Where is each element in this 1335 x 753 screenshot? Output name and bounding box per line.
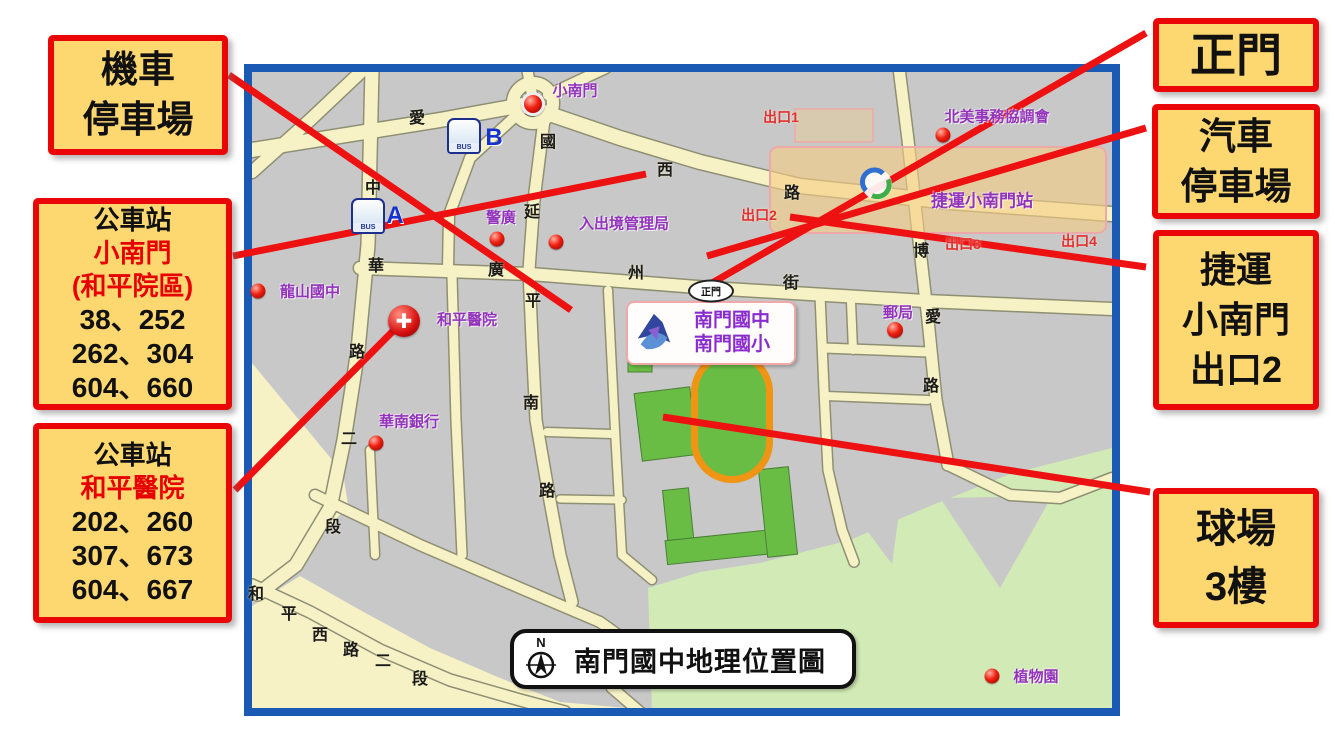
bus-routes: 307、673	[72, 539, 193, 573]
callout-main-gate: 正門	[1153, 18, 1319, 92]
callout-motorcycle-parking: 機車 停車場	[48, 35, 228, 155]
bus-routes: 604、660	[72, 371, 193, 405]
bus-routes: 604、667	[72, 573, 193, 607]
bus-routes: 202、260	[72, 505, 193, 539]
bus-stop-name-note: (和平院區)	[72, 270, 193, 303]
field-infield	[698, 358, 766, 476]
bus-stop-name: 小南門	[93, 237, 171, 270]
callout-line: 3樓	[1205, 558, 1267, 616]
road	[560, 499, 622, 500]
map-clip-group	[252, 68, 1112, 712]
callout-line: 停車場	[1181, 162, 1292, 212]
road	[851, 302, 853, 350]
road	[824, 348, 928, 352]
callout-car-parking: 汽車 停車場	[1152, 104, 1320, 219]
callout-bus-stop-xiaonanmen: 公車站 小南門 (和平院區) 38、252 262、304 604、660	[33, 198, 232, 410]
school-building-green	[628, 356, 652, 372]
callout-mrt-exit2: 捷運 小南門 出口2	[1153, 230, 1319, 410]
bus-routes: 262、304	[72, 337, 193, 371]
mrt-exit1-outline	[795, 109, 873, 142]
callout-line: 出口2	[1190, 345, 1282, 395]
callout-line: 小南門	[1182, 295, 1290, 345]
bus-stop-title: 公車站	[93, 204, 171, 237]
callout-bus-stop-heping-hospital: 公車站 和平醫院 202、260 307、673 604、667	[33, 423, 232, 623]
callout-line: 汽車	[1199, 112, 1273, 162]
bus-stop-name: 和平醫院	[80, 472, 184, 505]
bus-routes: 38、252	[80, 303, 186, 337]
bus-stop-title: 公車站	[93, 439, 171, 472]
callout-line: 停車場	[83, 95, 194, 145]
road	[826, 396, 928, 400]
location-map-slide: 南門國中 南門國小 N 南門國中地理位置圖 愛國西路中華路二段延平南路廣州街博愛…	[0, 0, 1335, 753]
callout-line: 捷運	[1200, 245, 1272, 295]
callout-line: 球場	[1196, 500, 1276, 558]
callout-line: 機車	[101, 45, 175, 95]
callout-line: 正門	[1190, 28, 1282, 82]
road	[370, 450, 375, 555]
callout-court-3f: 球場 3樓	[1153, 488, 1319, 628]
road	[547, 432, 612, 434]
